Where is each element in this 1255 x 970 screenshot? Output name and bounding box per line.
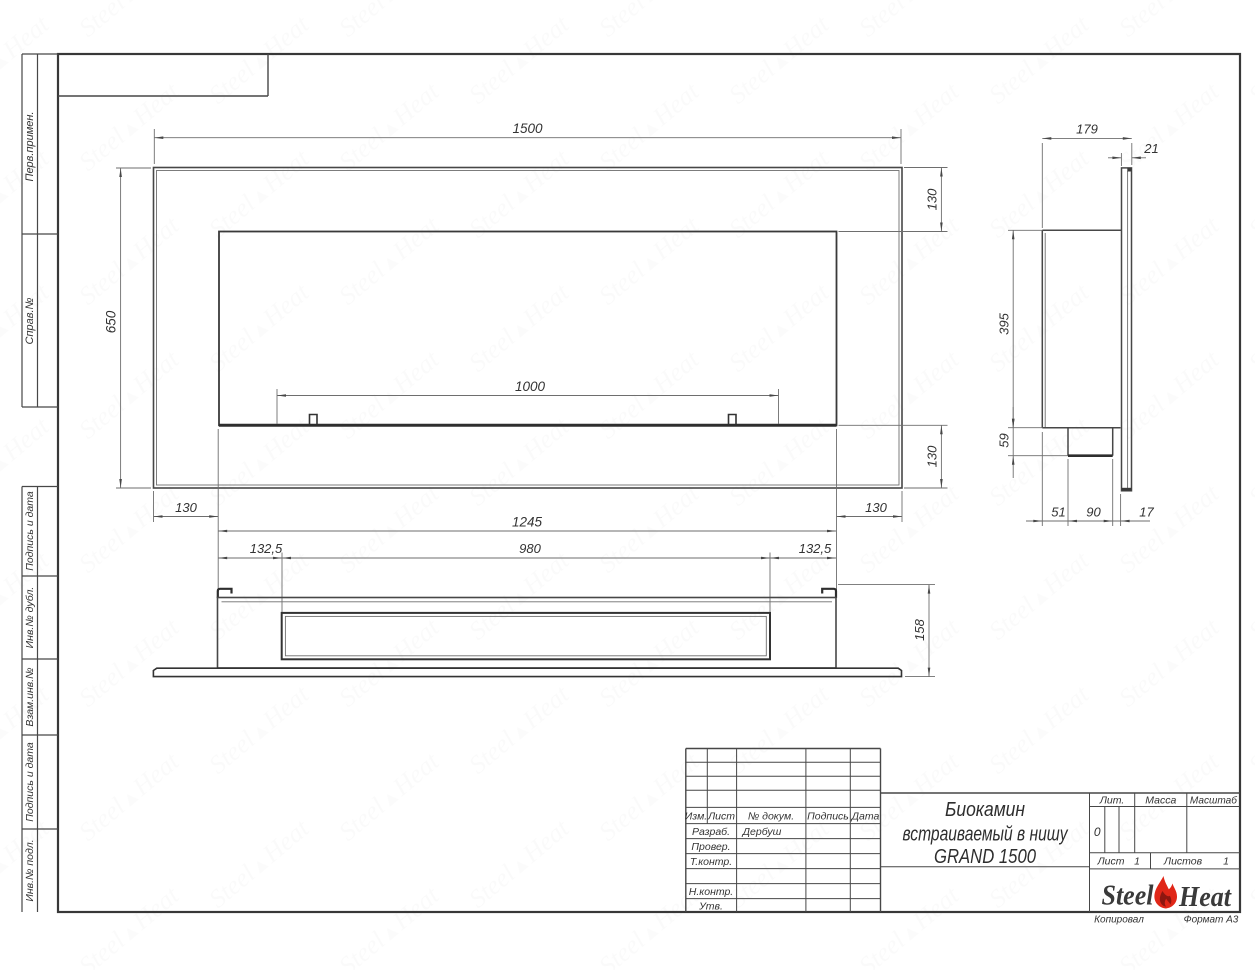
- svg-text:1500: 1500: [512, 121, 543, 136]
- svg-text:Утв.: Утв.: [698, 901, 723, 913]
- svg-text:Heat: Heat: [1178, 882, 1232, 913]
- svg-text:Инв.№ дубл.: Инв.№ дубл.: [24, 587, 36, 649]
- svg-text:1000: 1000: [515, 379, 546, 394]
- svg-text:Steel: Steel: [1102, 881, 1154, 912]
- svg-text:№ докум.: № докум.: [748, 811, 794, 823]
- svg-text:1: 1: [1134, 856, 1140, 868]
- svg-text:130: 130: [924, 445, 939, 467]
- svg-text:Перв.примен.: Перв.примен.: [24, 111, 36, 181]
- svg-text:Подпись: Подпись: [807, 811, 849, 823]
- svg-text:Разраб.: Разраб.: [692, 826, 730, 838]
- svg-text:980: 980: [519, 541, 541, 556]
- svg-text:Лист: Лист: [1096, 856, 1124, 868]
- svg-text:Справ.№: Справ.№: [24, 297, 36, 344]
- svg-text:Лит.: Лит.: [1099, 795, 1125, 807]
- svg-text:130: 130: [865, 500, 887, 515]
- svg-text:1: 1: [1223, 856, 1229, 868]
- svg-text:Дербуш: Дербуш: [742, 826, 782, 838]
- svg-text:Т.контр.: Т.контр.: [690, 856, 732, 868]
- svg-text:Взам.инв.№: Взам.инв.№: [24, 667, 36, 726]
- svg-text:90: 90: [1086, 505, 1101, 520]
- svg-text:179: 179: [1076, 122, 1098, 137]
- svg-text:650: 650: [104, 310, 119, 333]
- svg-text:17: 17: [1139, 505, 1154, 520]
- svg-text:Подпись и дата: Подпись и дата: [24, 491, 36, 571]
- svg-text:Н.контр.: Н.контр.: [689, 886, 733, 898]
- svg-text:Масштаб: Масштаб: [1190, 795, 1238, 807]
- svg-text:132,5: 132,5: [250, 541, 283, 556]
- svg-text:21: 21: [1143, 141, 1158, 156]
- svg-text:51: 51: [1051, 505, 1065, 520]
- svg-text:Лист: Лист: [707, 811, 735, 823]
- svg-text:130: 130: [924, 188, 939, 210]
- svg-text:Масса: Масса: [1145, 795, 1176, 807]
- svg-text:Биокамин: Биокамин: [945, 799, 1025, 821]
- svg-text:Изм.: Изм.: [685, 811, 707, 823]
- svg-text:Копировал: Копировал: [1094, 915, 1144, 926]
- svg-text:Провер.: Провер.: [691, 841, 730, 853]
- svg-text:Дата: Дата: [851, 811, 880, 823]
- svg-text:158: 158: [912, 618, 927, 640]
- svg-text:встраиваемый в нишу: встраиваемый в нишу: [903, 824, 1069, 846]
- svg-text:132,5: 132,5: [799, 541, 832, 556]
- svg-text:Инв.№ подл.: Инв.№ подл.: [24, 839, 36, 901]
- svg-text:59: 59: [997, 433, 1012, 447]
- svg-text:Листов: Листов: [1163, 856, 1203, 868]
- svg-text:130: 130: [175, 500, 197, 515]
- svg-text:Формат А3: Формат А3: [1184, 915, 1239, 926]
- svg-text:0: 0: [1094, 825, 1101, 839]
- svg-text:GRAND 1500: GRAND 1500: [934, 846, 1036, 868]
- svg-text:1245: 1245: [512, 515, 543, 530]
- svg-text:395: 395: [997, 312, 1012, 334]
- svg-text:Подпись и дата: Подпись и дата: [24, 742, 36, 822]
